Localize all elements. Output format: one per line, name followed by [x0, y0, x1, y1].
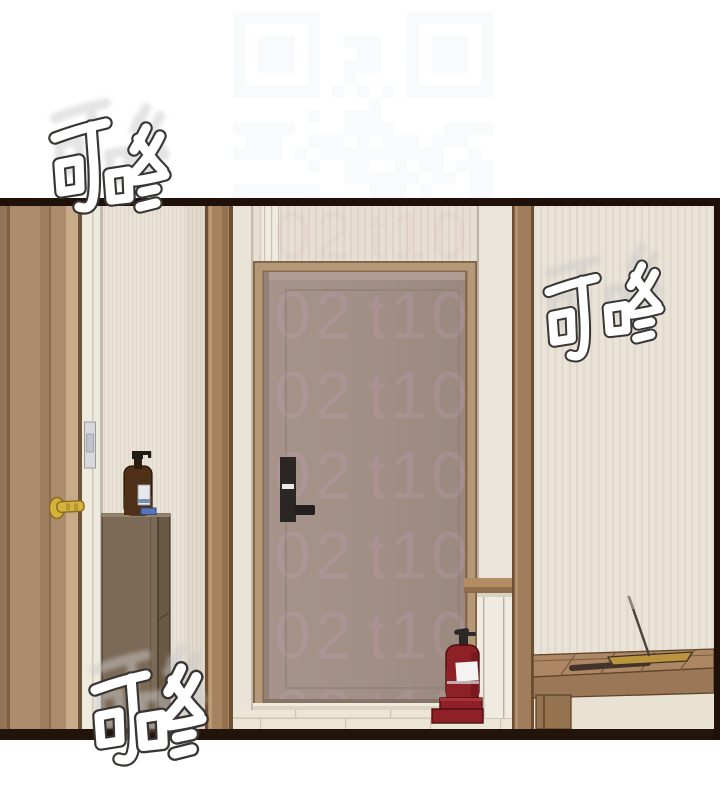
svg-text:t10: t10 [368, 278, 472, 352]
svg-text:t10: t10 [368, 198, 472, 272]
svg-text:02: 02 [274, 598, 355, 672]
svg-text:02: 02 [274, 518, 355, 592]
svg-text:02: 02 [274, 358, 355, 432]
svg-text:t10: t10 [368, 438, 472, 512]
svg-text:02: 02 [274, 278, 355, 352]
svg-text:t10: t10 [368, 358, 472, 432]
svg-text:02: 02 [274, 198, 355, 272]
svg-text:t10: t10 [368, 518, 472, 592]
